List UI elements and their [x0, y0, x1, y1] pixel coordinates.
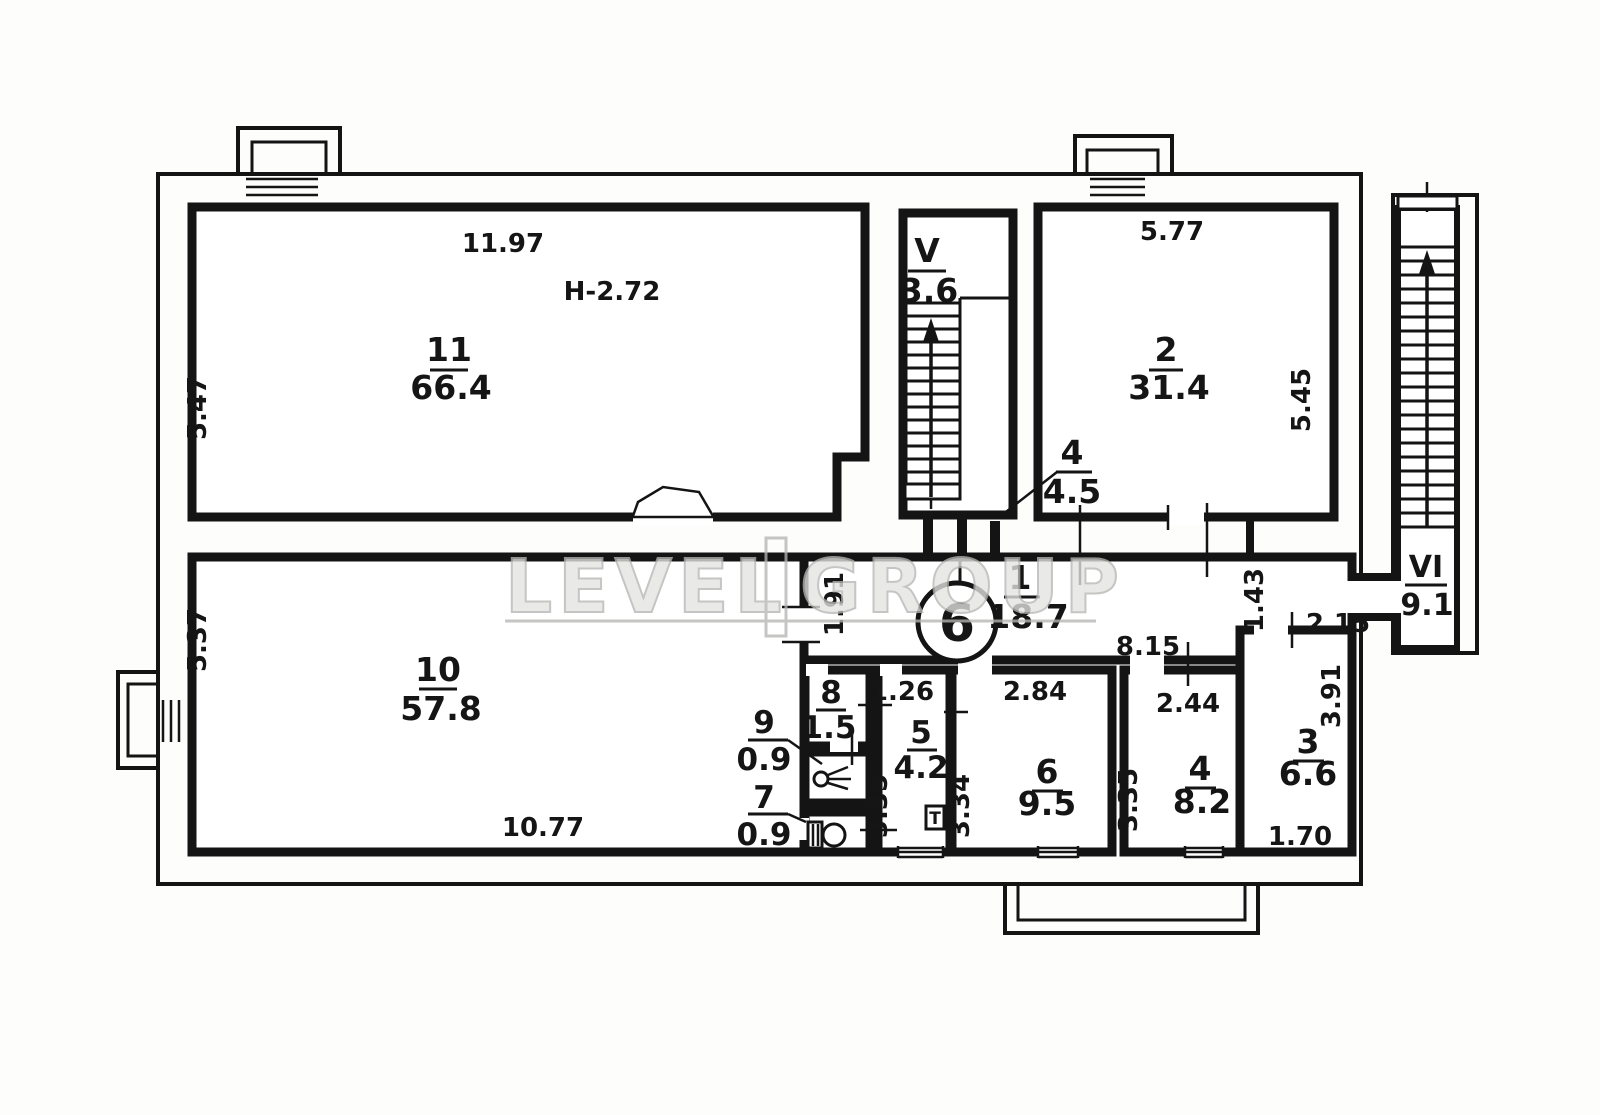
- toilet-icon: [808, 822, 845, 848]
- room-9-number: 9: [753, 705, 775, 741]
- room-4-upper-number: 4: [1061, 433, 1084, 472]
- room-10-number: 10: [415, 650, 461, 689]
- window-bottom-3: [1185, 846, 1223, 858]
- room-9-area: 0.9: [737, 742, 792, 778]
- dim-corridor-length: 8.15: [1116, 632, 1180, 662]
- dim-room-5-depth: 3.35: [864, 774, 894, 838]
- dim-room-6-width: 2.84: [1003, 677, 1067, 707]
- room-10-area: 57.8: [400, 689, 481, 728]
- watermark-level: LEVEL: [505, 544, 788, 630]
- dim-room-4-depth: 3.35: [1114, 768, 1144, 832]
- stair-vi-number: VI: [1409, 550, 1443, 585]
- room-3-area: 6.6: [1279, 754, 1337, 793]
- room-7-number: 7: [753, 780, 775, 816]
- stair-v-number: V: [914, 231, 940, 270]
- room-2-area: 31.4: [1128, 368, 1209, 407]
- dim-room-10-depth: 5.37: [183, 608, 213, 672]
- dim-room-2-width: 5.77: [1140, 217, 1204, 247]
- stair-vi-area: 9.1: [1400, 588, 1453, 623]
- window-left: [163, 700, 179, 742]
- dim-room-10-width: 10.77: [502, 813, 584, 843]
- electric-panel-label: Т: [929, 809, 941, 829]
- scanned-floor-plan-sheet: Т 6 11 66.4 2 31.4 V 3.6 4 4.5 1 18.7 VI…: [0, 0, 1600, 1115]
- room-2-number: 2: [1155, 330, 1178, 369]
- room-4-upper-area: 4.5: [1043, 472, 1101, 511]
- dim-room-3-width: 1.70: [1268, 822, 1332, 852]
- dim-ceiling-height: H-2.72: [564, 277, 661, 307]
- room-5-area: 4.2: [894, 750, 949, 786]
- room-4-area: 8.2: [1173, 782, 1231, 821]
- dim-corridor-end: 2.15: [1306, 609, 1370, 639]
- dim-room-11-depth: 5.47: [183, 376, 213, 440]
- floor-plan: Т 6 11 66.4 2 31.4 V 3.6 4 4.5 1 18.7 VI…: [0, 0, 1600, 1115]
- dim-room-3-depth: 3.91: [1317, 664, 1347, 728]
- room-11-number: 11: [426, 330, 472, 369]
- window-top-middle: [1090, 179, 1145, 195]
- dim-room-5-width: 1.26: [870, 677, 934, 707]
- watermark-group: GROUP: [800, 544, 1125, 630]
- room-11-area: 66.4: [410, 368, 491, 407]
- dim-corridor-right: 1.43: [1240, 568, 1270, 632]
- room-5-number: 5: [910, 715, 932, 751]
- dim-room-2-depth: 5.45: [1287, 368, 1317, 432]
- window-bottom-2: [1038, 846, 1078, 858]
- window-top-left: [246, 179, 318, 195]
- dim-room-6-depth: 3.34: [946, 774, 976, 838]
- watermark: LEVEL GROUP: [505, 538, 1125, 636]
- electric-panel-icon: Т: [926, 806, 944, 829]
- room-7-area: 0.9: [737, 817, 792, 853]
- window-bottom-1: [898, 846, 943, 858]
- dim-room-4-width: 2.44: [1156, 689, 1220, 719]
- room-8-number: 8: [820, 675, 842, 711]
- dim-room-11-width: 11.97: [462, 229, 544, 259]
- room-8-area: 1.5: [802, 710, 857, 746]
- room-6-area: 9.5: [1018, 784, 1076, 823]
- stair-v-area: 3.6: [900, 271, 958, 310]
- walls: [192, 207, 1457, 852]
